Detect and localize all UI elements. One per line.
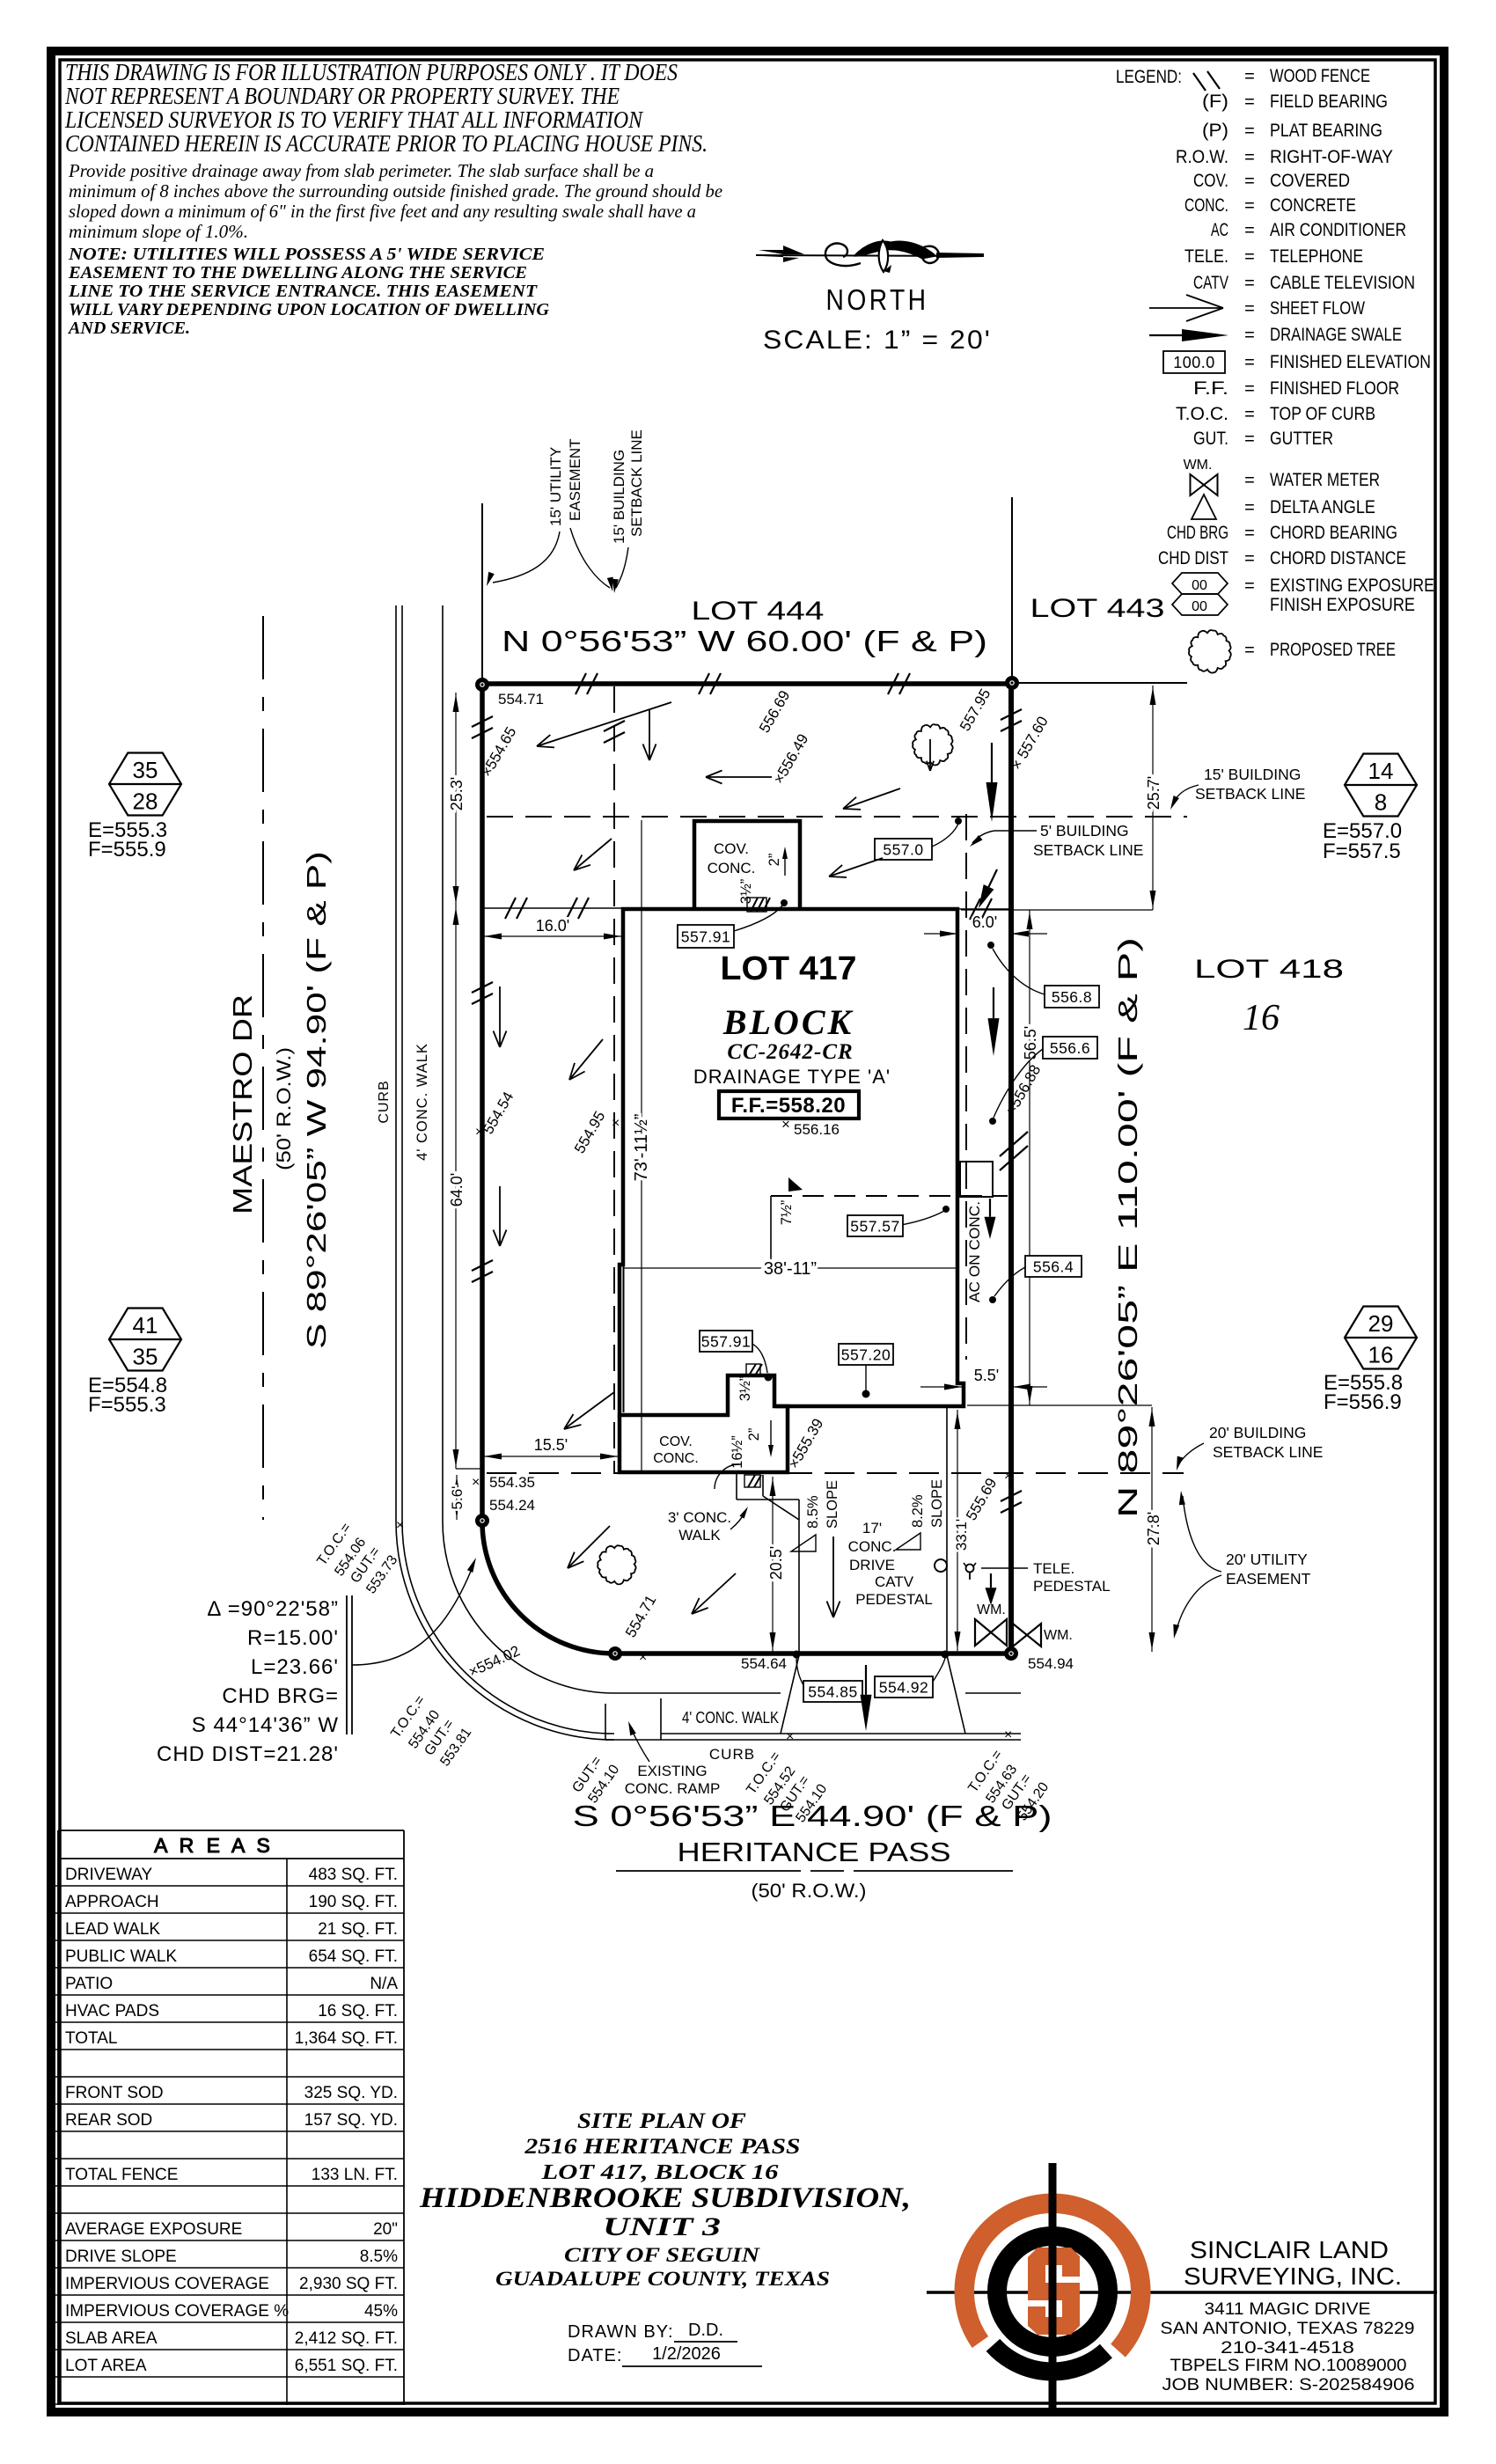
svg-text:WM.: WM. <box>1184 458 1213 473</box>
svg-text:×: × <box>781 1116 790 1133</box>
svg-text:×: × <box>472 1475 480 1490</box>
svg-text:3½”: 3½” <box>737 1376 753 1401</box>
svg-text:LEGEND:: LEGEND: <box>1116 67 1182 87</box>
svg-text:LICENSED SURVEYOR IS TO VERIFY: LICENSED SURVEYOR IS TO VERIFY THAT ALL … <box>64 106 644 133</box>
svg-text:PEDESTAL: PEDESTAL <box>855 1591 933 1608</box>
svg-text:25.7': 25.7' <box>1145 776 1162 810</box>
svg-text:210-341-4518: 210-341-4518 <box>1221 2338 1354 2358</box>
svg-text:SLAB AREA: SLAB AREA <box>65 2329 158 2348</box>
svg-text:TOTAL: TOTAL <box>65 2029 117 2048</box>
svg-text:SETBACK LINE: SETBACK LINE <box>628 429 645 537</box>
svg-text:190 SQ. FT.: 190 SQ. FT. <box>309 1893 398 1911</box>
svg-text:6,551 SQ. FT.: 6,551 SQ. FT. <box>295 2357 398 2375</box>
svg-text:20.5': 20.5' <box>767 1546 785 1580</box>
svg-text:1/2/2026: 1/2/2026 <box>652 2344 721 2364</box>
svg-text:BLOCK: BLOCK <box>722 1002 854 1042</box>
svg-text:17': 17' <box>862 1520 882 1536</box>
svg-text:UNIT 3: UNIT 3 <box>603 2212 721 2241</box>
svg-text:45%: 45% <box>364 2302 398 2321</box>
svg-text:×: × <box>396 1518 404 1533</box>
svg-text:Δ =90°22'58”: Δ =90°22'58” <box>207 1597 339 1621</box>
svg-text:TOP OF CURB: TOP OF CURB <box>1270 404 1375 424</box>
svg-text:EASEMENT: EASEMENT <box>1226 1570 1311 1588</box>
svg-text:LOT AREA: LOT AREA <box>65 2357 147 2375</box>
svg-text:=: = <box>1244 524 1255 543</box>
svg-text:PUBLIC WALK: PUBLIC WALK <box>65 1947 177 1966</box>
svg-text:(50' R.O.W.): (50' R.O.W.) <box>752 1880 867 1902</box>
svg-text:554.24: 554.24 <box>489 1497 535 1514</box>
svg-text:CC-2642-CR: CC-2642-CR <box>727 1040 853 1064</box>
svg-text:SITE PLAN OF: SITE PLAN OF <box>577 2109 746 2133</box>
svg-text:CONC. RAMP: CONC. RAMP <box>625 1780 721 1797</box>
svg-text:TOTAL FENCE: TOTAL FENCE <box>65 2166 178 2184</box>
svg-text:CURB: CURB <box>377 1080 392 1123</box>
svg-text:=: = <box>1244 274 1255 293</box>
svg-text:COV.: COV. <box>659 1434 693 1449</box>
svg-text:COV.: COV. <box>714 840 749 857</box>
svg-text:IMPERVIOUS COVERAGE %: IMPERVIOUS COVERAGE % <box>65 2302 289 2321</box>
svg-text:=: = <box>1244 405 1255 424</box>
svg-text:WOOD FENCE: WOOD FENCE <box>1270 66 1370 86</box>
svg-text:21 SQ. FT.: 21 SQ. FT. <box>318 1920 398 1939</box>
svg-text:F=555.3: F=555.3 <box>88 1393 166 1417</box>
svg-text:D.D.: D.D. <box>688 2321 723 2340</box>
svg-text:N 89°26'05” E 110.00' (F & P: N 89°26'05” E 110.00' (F & P) <box>1112 937 1143 1518</box>
svg-text:557.91: 557.91 <box>681 928 731 945</box>
svg-text:5' BUILDING: 5' BUILDING <box>1040 822 1129 840</box>
svg-text:7½”: 7½” <box>779 1200 795 1225</box>
svg-text:DATE:: DATE: <box>568 2346 622 2365</box>
svg-text:5.5': 5.5' <box>974 1367 999 1384</box>
svg-text:NOT REPRESENT A BOUNDARY OR PR: NOT REPRESENT A BOUNDARY OR PROPERTY SUR… <box>64 83 620 109</box>
svg-text:WILL VARY DEPENDING UPON L: WILL VARY DEPENDING UPON LOCATION OF DWE… <box>69 300 549 319</box>
svg-text:SURVEYING, INC.: SURVEYING, INC. <box>1184 2262 1402 2290</box>
svg-text:A R E A S: A R E A S <box>154 1834 274 1857</box>
svg-text:25.3': 25.3' <box>448 777 466 810</box>
svg-text:AVERAGE EXPOSURE: AVERAGE EXPOSURE <box>65 2220 242 2239</box>
svg-text:SLOPE: SLOPE <box>929 1479 945 1528</box>
svg-text:557.57: 557.57 <box>850 1217 900 1235</box>
svg-text:CHORD BEARING: CHORD BEARING <box>1270 523 1397 543</box>
svg-text:16.0': 16.0' <box>536 917 569 935</box>
svg-text:R.O.W.: R.O.W. <box>1176 147 1228 167</box>
svg-text:483 SQ. FT.: 483 SQ. FT. <box>309 1866 398 1884</box>
svg-text:CONC.: CONC. <box>653 1451 699 1466</box>
svg-text:DRIVE: DRIVE <box>849 1557 895 1573</box>
svg-text:15.5': 15.5' <box>534 1436 568 1454</box>
svg-text:325 SQ. YD.: 325 SQ. YD. <box>304 2084 398 2102</box>
svg-text:SETBACK LINE: SETBACK LINE <box>1195 785 1305 803</box>
svg-text:LINE TO THE SERVICE ENTRAN: LINE TO THE SERVICE ENTRANCE. THIS EASEM… <box>68 282 539 301</box>
svg-text:CHD DIST: CHD DIST <box>1158 548 1228 568</box>
svg-text:35: 35 <box>133 757 158 783</box>
svg-text:8: 8 <box>1375 788 1387 815</box>
svg-text:Provide positive drainage away: Provide positive drainage away from slab… <box>68 160 654 181</box>
svg-text:557.91: 557.91 <box>701 1332 752 1350</box>
svg-text:16: 16 <box>1243 998 1280 1038</box>
svg-text:FINISHED FLOOR: FINISHED FLOOR <box>1270 378 1399 399</box>
svg-text:R=15.00': R=15.00' <box>247 1626 339 1650</box>
svg-text:557.20: 557.20 <box>841 1346 891 1363</box>
svg-text:20' BUILDING: 20' BUILDING <box>1209 1424 1306 1441</box>
svg-text:(F): (F) <box>1202 92 1228 112</box>
svg-text:GUT.: GUT. <box>1193 429 1228 449</box>
svg-text:8.5%: 8.5% <box>805 1495 821 1529</box>
svg-text:TELE.: TELE. <box>1184 246 1228 267</box>
svg-text:CONC.: CONC. <box>708 860 756 876</box>
svg-text:=: = <box>1244 299 1255 319</box>
svg-text:554.85: 554.85 <box>808 1683 858 1700</box>
svg-text:PEDESTAL: PEDESTAL <box>1033 1578 1111 1595</box>
svg-text:554.71: 554.71 <box>498 691 544 708</box>
svg-text:654 SQ. FT.: 654 SQ. FT. <box>309 1947 398 1966</box>
svg-text:DRAINAGE TYPE 'A': DRAINAGE TYPE 'A' <box>693 1066 891 1088</box>
svg-text:556.8: 556.8 <box>1052 988 1092 1006</box>
svg-text:CABLE TELEVISION: CABLE TELEVISION <box>1270 273 1415 293</box>
svg-text:15' UTILITY: 15' UTILITY <box>547 447 564 526</box>
svg-text:DELTA ANGLE: DELTA ANGLE <box>1270 497 1375 517</box>
svg-text:×: × <box>612 1116 620 1131</box>
svg-text:(50' R.O.W.): (50' R.O.W.) <box>273 1047 295 1170</box>
svg-text:5.6': 5.6' <box>449 1486 466 1510</box>
svg-text:NOTE: UTILITIES WILL POSSES: NOTE: UTILITIES WILL POSSESS A 5' WIDE S… <box>68 245 545 264</box>
svg-text:NORTH: NORTH <box>826 283 929 316</box>
svg-text:LEAD WALK: LEAD WALK <box>65 1920 160 1939</box>
svg-text:556.16: 556.16 <box>794 1121 840 1138</box>
svg-text:4' CONC. WALK: 4' CONC. WALK <box>682 1709 779 1727</box>
svg-text:00: 00 <box>1192 599 1207 614</box>
svg-text:=: = <box>1244 196 1255 216</box>
svg-text:16: 16 <box>1368 1341 1394 1368</box>
svg-text:15' BUILDING: 15' BUILDING <box>611 450 627 544</box>
svg-text:15' BUILDING: 15' BUILDING <box>1204 766 1301 783</box>
svg-text:41: 41 <box>133 1312 158 1338</box>
svg-text:F=557.5: F=557.5 <box>1323 840 1401 863</box>
svg-text:LOT 444: LOT 444 <box>692 597 825 626</box>
svg-text:AND SERVICE.: AND SERVICE. <box>67 319 190 338</box>
svg-text:PLAT BEARING: PLAT BEARING <box>1270 121 1382 141</box>
svg-text:16½”: 16½” <box>730 1435 745 1469</box>
svg-text:38'-11”: 38'-11” <box>764 1259 817 1279</box>
svg-text:=: = <box>1244 498 1255 517</box>
svg-text:SHEET FLOW: SHEET FLOW <box>1270 298 1365 319</box>
svg-text:3' CONC.: 3' CONC. <box>668 1509 731 1526</box>
svg-text:73'-11½”: 73'-11½” <box>632 1114 651 1182</box>
svg-text:=: = <box>1244 576 1255 596</box>
svg-text:16 SQ. FT.: 16 SQ. FT. <box>318 2002 398 2020</box>
svg-text:AC: AC <box>1211 220 1228 240</box>
svg-text:GUTTER: GUTTER <box>1270 429 1333 449</box>
svg-text:TELEPHONE: TELEPHONE <box>1270 246 1363 267</box>
svg-text:CATV: CATV <box>1193 273 1228 293</box>
svg-text:LOT 417, BLOCK 16: LOT 417, BLOCK 16 <box>540 2161 778 2184</box>
svg-text:FINISHED ELEVATION: FINISHED ELEVATION <box>1270 352 1431 372</box>
svg-text:LOT 443: LOT 443 <box>1030 594 1165 623</box>
svg-text:LOT 418: LOT 418 <box>1194 955 1344 984</box>
svg-text:EXISTING EXPOSURE: EXISTING EXPOSURE <box>1270 576 1434 596</box>
svg-text:EXISTING: EXISTING <box>637 1763 707 1779</box>
svg-text:×: × <box>639 1650 647 1665</box>
svg-text:SAN ANTONIO, TEXAS 78229: SAN ANTONIO, TEXAS 78229 <box>1161 2319 1415 2338</box>
svg-text:00: 00 <box>1192 578 1207 593</box>
svg-text:COV.: COV. <box>1193 171 1228 191</box>
svg-text:LOT 417: LOT 417 <box>721 950 857 987</box>
svg-text:DRIVEWAY: DRIVEWAY <box>65 1866 153 1884</box>
svg-text:minimum of 8 inches above the: minimum of 8 inches above the surroundin… <box>69 180 722 202</box>
svg-text:FINISH EXPOSURE: FINISH EXPOSURE <box>1270 595 1415 615</box>
svg-text:CONC.: CONC. <box>848 1538 897 1555</box>
svg-text:556.6: 556.6 <box>1050 1039 1090 1057</box>
svg-text:CURB: CURB <box>709 1746 755 1763</box>
svg-text:2”: 2” <box>746 1428 762 1441</box>
svg-text:2,930 SQ FT.: 2,930 SQ FT. <box>299 2275 398 2293</box>
svg-text:554.92: 554.92 <box>879 1678 929 1696</box>
svg-text:WALK: WALK <box>678 1527 721 1544</box>
svg-text:SCALE: 1” = 20': SCALE: 1” = 20' <box>763 326 992 355</box>
svg-text:CHORD DISTANCE: CHORD DISTANCE <box>1270 548 1406 568</box>
svg-text:CONTAINED HEREIN IS ACCURATE P: CONTAINED HEREIN IS ACCURATE PRIOR TO PL… <box>65 130 708 157</box>
svg-text:100.0: 100.0 <box>1173 354 1215 371</box>
svg-text:JOB NUMBER: S-202584906: JOB NUMBER: S-202584906 <box>1162 2375 1415 2394</box>
svg-text:29: 29 <box>1368 1310 1394 1337</box>
svg-text:minimum slope of 1.0%.: minimum slope of 1.0%. <box>69 221 248 242</box>
svg-text:DRAINAGE SWALE: DRAINAGE SWALE <box>1270 325 1402 345</box>
svg-text:CHD BRG: CHD BRG <box>1167 523 1228 543</box>
svg-text:28: 28 <box>133 788 158 814</box>
svg-text:=: = <box>1244 326 1255 345</box>
svg-text:DRIVE SLOPE: DRIVE SLOPE <box>65 2248 177 2266</box>
svg-text:=: = <box>1244 429 1255 449</box>
svg-text:F.F.: F.F. <box>1193 378 1228 399</box>
svg-text:REAR SOD: REAR SOD <box>65 2111 152 2130</box>
svg-text:1,364 SQ. FT.: 1,364 SQ. FT. <box>295 2029 398 2048</box>
svg-text:F.F.=558.20: F.F.=558.20 <box>731 1094 846 1118</box>
svg-text:×: × <box>1004 1727 1012 1742</box>
svg-text:N/A: N/A <box>370 1975 398 1993</box>
svg-text:20' UTILITY: 20' UTILITY <box>1226 1551 1308 1568</box>
svg-text:554.64: 554.64 <box>741 1655 787 1672</box>
svg-text:2516 HERITANCE PASS: 2516 HERITANCE PASS <box>524 2135 800 2159</box>
svg-text:=: = <box>1244 92 1255 112</box>
svg-text:556.4: 556.4 <box>1033 1258 1074 1275</box>
svg-text:SINCLAIR LAND: SINCLAIR LAND <box>1190 2236 1389 2263</box>
svg-text:CHD BRG=: CHD BRG= <box>222 1684 339 1708</box>
svg-text:AC ON CONC.: AC ON CONC. <box>967 1201 983 1302</box>
svg-text:=: = <box>1244 148 1255 167</box>
svg-text:MAESTRO DR: MAESTRO DR <box>227 994 258 1214</box>
svg-text:WM.: WM. <box>977 1602 1006 1617</box>
svg-text:FRONT SOD: FRONT SOD <box>65 2084 164 2102</box>
svg-text:CONCRETE: CONCRETE <box>1270 195 1356 216</box>
svg-text:27.8': 27.8' <box>1145 1512 1162 1545</box>
svg-text:CITY OF SEGUIN: CITY OF SEGUIN <box>564 2244 761 2266</box>
svg-text:DRAWN BY:: DRAWN BY: <box>568 2322 674 2342</box>
svg-text:20": 20" <box>373 2220 398 2239</box>
svg-text:WM.: WM. <box>1044 1628 1073 1643</box>
svg-text:=: = <box>1244 67 1255 86</box>
svg-text:=: = <box>1244 247 1255 267</box>
svg-text:EASEMENT TO THE DWELLING A: EASEMENT TO THE DWELLING ALONG THE SERVI… <box>68 263 527 282</box>
svg-text:COVERED: COVERED <box>1270 171 1350 191</box>
svg-text:×: × <box>786 1729 794 1744</box>
svg-text:=: = <box>1244 471 1255 490</box>
svg-text:133 LN. FT.: 133 LN. FT. <box>312 2166 398 2184</box>
svg-text:FIELD BEARING: FIELD BEARING <box>1270 92 1388 112</box>
svg-text:CATV: CATV <box>875 1573 914 1590</box>
svg-text:8.2%: 8.2% <box>910 1494 926 1528</box>
svg-text:AIR CONDITIONER: AIR CONDITIONER <box>1270 220 1406 240</box>
svg-text:=: = <box>1244 172 1255 191</box>
svg-text:SLOPE: SLOPE <box>825 1480 840 1529</box>
svg-text:14: 14 <box>1368 758 1394 784</box>
svg-text:554.94: 554.94 <box>1028 1655 1074 1672</box>
svg-text:L=23.66': L=23.66' <box>251 1655 339 1679</box>
svg-text:3411 MAGIC DRIVE: 3411 MAGIC DRIVE <box>1205 2299 1371 2319</box>
svg-text:WATER METER: WATER METER <box>1270 470 1380 490</box>
svg-text:×: × <box>1004 1469 1012 1484</box>
svg-text:557.0: 557.0 <box>883 840 923 858</box>
svg-text:IMPERVIOUS COVERAGE: IMPERVIOUS COVERAGE <box>65 2275 269 2293</box>
svg-text:RIGHT-OF-WAY: RIGHT-OF-WAY <box>1270 147 1393 167</box>
svg-text:CHD DIST=21.28': CHD DIST=21.28' <box>157 1742 339 1766</box>
svg-text:S 89°26'05” W 94.90' (F & P): S 89°26'05” W 94.90' (F & P) <box>301 851 332 1349</box>
svg-text:PROPOSED TREE: PROPOSED TREE <box>1270 640 1396 660</box>
svg-text:2,412 SQ. FT.: 2,412 SQ. FT. <box>295 2329 398 2348</box>
svg-text:N 0°56'53” W 60.00' (F & P): N 0°56'53” W 60.00' (F & P) <box>502 625 987 657</box>
svg-text:HIDDENBROOKE SUBDIVISION,: HIDDENBROOKE SUBDIVISION, <box>419 2182 911 2214</box>
svg-text:=: = <box>1244 221 1255 240</box>
svg-text:GUADALUPE COUNTY, TEXAS: GUADALUPE COUNTY, TEXAS <box>495 2268 830 2290</box>
svg-text:F=555.9: F=555.9 <box>88 838 166 862</box>
svg-text:(P): (P) <box>1202 121 1228 141</box>
svg-text:3½”: 3½” <box>738 879 754 904</box>
svg-text:6.0': 6.0' <box>972 913 997 931</box>
svg-text:64.0': 64.0' <box>448 1173 466 1206</box>
svg-text:TELE.: TELE. <box>1033 1560 1074 1577</box>
svg-text:33.1': 33.1' <box>953 1519 970 1551</box>
svg-text:=: = <box>1244 353 1255 372</box>
svg-text:EASEMENT: EASEMENT <box>567 438 583 521</box>
svg-text:8.5%: 8.5% <box>360 2248 398 2266</box>
svg-text:4' CONC. WALK: 4' CONC. WALK <box>414 1043 430 1161</box>
svg-text:2”: 2” <box>766 854 782 867</box>
svg-text:SETBACK LINE: SETBACK LINE <box>1033 841 1143 859</box>
svg-text:157 SQ. YD.: 157 SQ. YD. <box>304 2111 398 2130</box>
svg-text:sloped down a minimum of 6" in: sloped down a minimum of 6" in the first… <box>69 201 696 222</box>
svg-text:S 44°14'36” W: S 44°14'36” W <box>192 1713 339 1737</box>
svg-text:TBPELS FIRM NO.10089000: TBPELS FIRM NO.10089000 <box>1170 2356 1407 2375</box>
svg-text:=: = <box>1244 641 1255 660</box>
svg-text:THIS DRAWING IS FOR ILLUSTRATI: THIS DRAWING IS FOR ILLUSTRATION PURPOSE… <box>65 59 678 85</box>
svg-text:=: = <box>1244 379 1255 399</box>
svg-text:=: = <box>1244 549 1255 568</box>
svg-text:SETBACK LINE: SETBACK LINE <box>1213 1443 1323 1461</box>
svg-text:CONC.: CONC. <box>1184 195 1228 216</box>
svg-text:F=556.9: F=556.9 <box>1324 1390 1402 1414</box>
svg-text:HERITANCE PASS: HERITANCE PASS <box>678 1837 951 1867</box>
svg-text:APPROACH: APPROACH <box>65 1893 159 1911</box>
svg-text:PATIO: PATIO <box>65 1975 113 1993</box>
svg-text:554.35: 554.35 <box>489 1474 535 1491</box>
svg-text:35: 35 <box>133 1343 158 1369</box>
svg-text:HVAC PADS: HVAC PADS <box>65 2002 159 2020</box>
svg-text:=: = <box>1244 121 1255 141</box>
svg-text:T.O.C.: T.O.C. <box>1176 404 1228 424</box>
